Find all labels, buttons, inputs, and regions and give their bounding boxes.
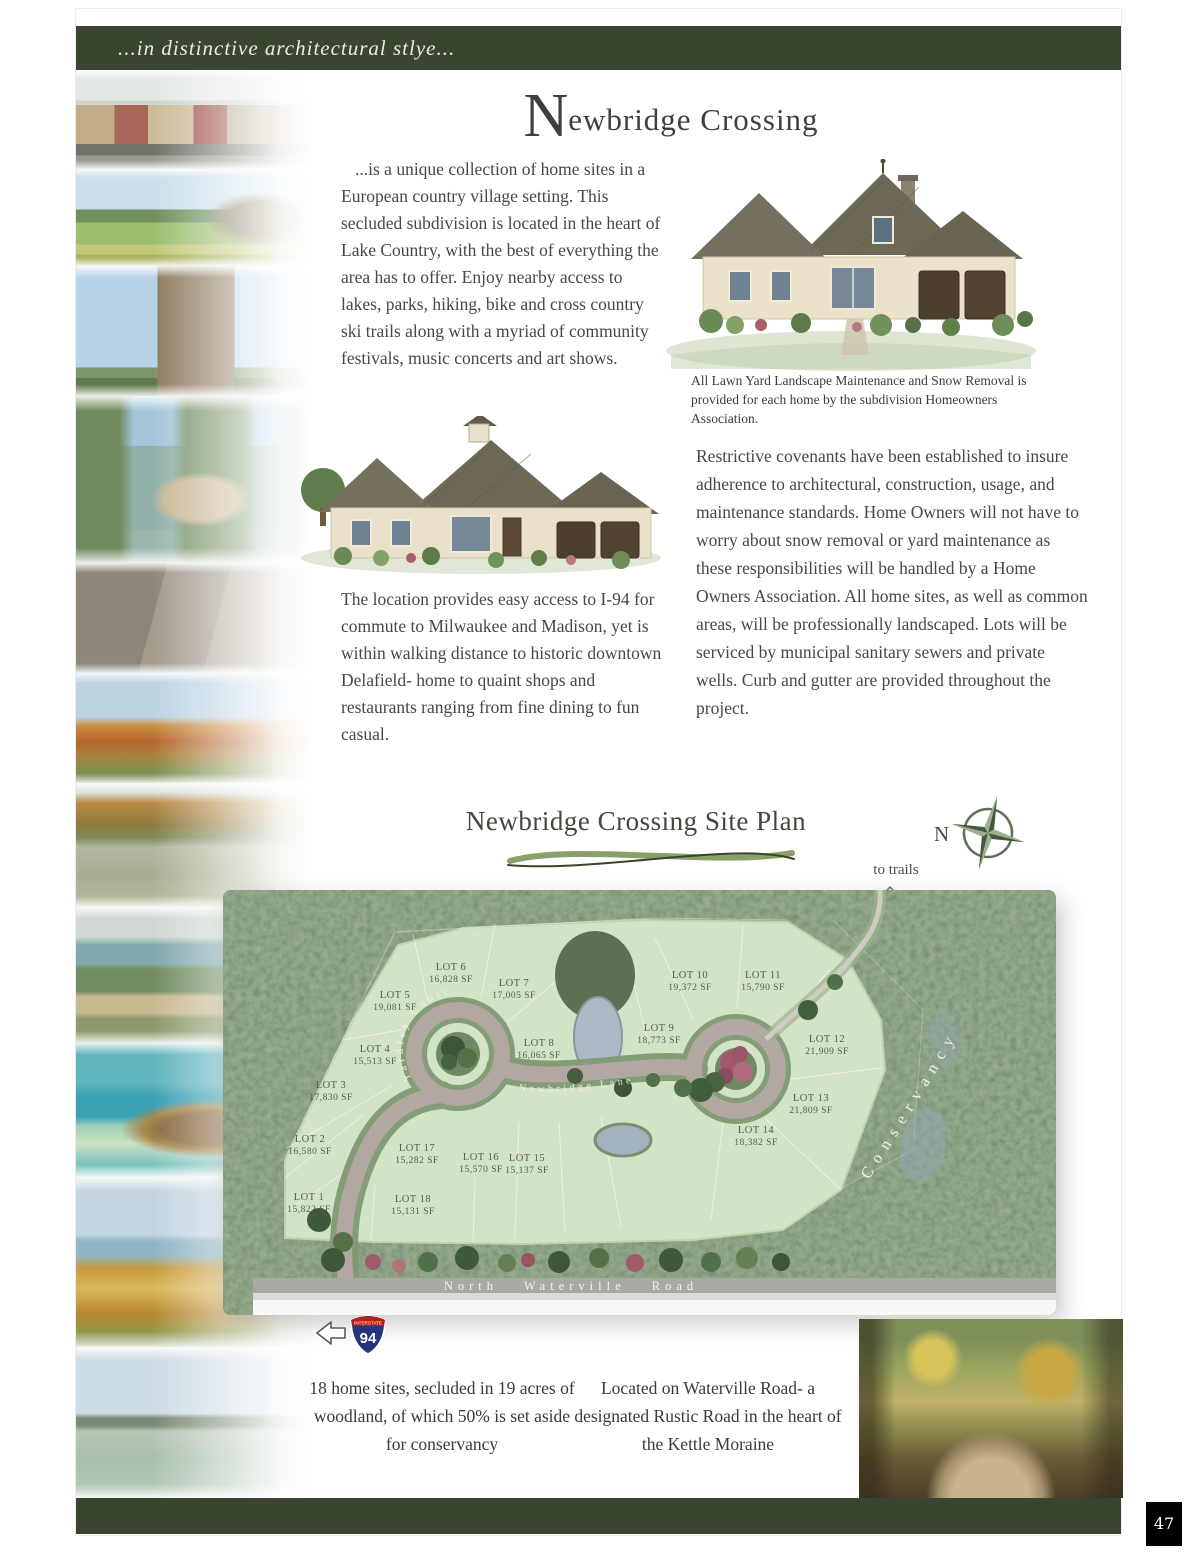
house-illustration-1 [651,159,1051,374]
location-paragraph: The location provides easy access to I-9… [341,586,663,748]
photo-calm-lake [76,1347,316,1498]
trails-label: to trails [851,862,941,879]
garage-door [919,271,959,319]
title-swoosh [506,847,796,873]
site-plan-map: Yardley Court Newbridge Lane Conservancy… [223,890,1056,1315]
page-title: Newbridge Crossing [426,87,916,145]
maintenance-caption: All Lawn Yard Landscape Maintenance and … [691,371,1063,428]
covenants-paragraph: Restrictive covenants have been establis… [696,442,1088,722]
header-bar: ...in distinctive architectural stlye... [76,26,1121,70]
garage-door [557,522,595,558]
photo-lake-reflection [76,783,316,907]
small-pond [595,1124,651,1156]
house-illustration-2 [291,416,671,578]
photo-park-sign [76,396,316,563]
brochure-page: ...in distinctive architectural stlye...… [75,8,1122,1536]
page-title-rest: ewbridge Crossing [568,102,818,137]
left-arrow-icon [317,1322,345,1344]
intro-paragraph: ...is a unique collection of home sites … [341,156,663,372]
interstate-shield: INTERSTATE 94 [351,1316,385,1354]
photo-autumn-canopy [76,673,316,783]
rustic-road-photo [859,1319,1123,1498]
photo-observation-tower [76,266,316,396]
cupola [469,424,489,442]
footer-bar [76,1498,1121,1534]
summary-rustic-road: Located on Waterville Road- a designated… [564,1374,852,1458]
photo-village-street [76,71,316,169]
front-door [503,518,521,556]
header-tagline: ...in distinctive architectural stlye... [76,26,1121,70]
siteplan-title: Newbridge Crossing Site Plan [376,806,896,837]
interstate-top-label: INTERSTATE [354,1321,382,1326]
road-label: North Waterville Road [444,1279,698,1293]
bay-window [451,516,491,552]
interstate-marker: INTERSTATE 94 [313,1312,385,1358]
photo-stone-tower-view [76,563,316,673]
page-title-initial: N [523,82,568,150]
interstate-number: 94 [360,1330,377,1347]
summary-home-sites: 18 home sites, secluded in 19 acres of w… [304,1374,580,1458]
page-number: 47 [1146,1502,1182,1546]
photo-golf-wagon [76,169,316,266]
compass-n-label: N [934,822,949,846]
garage-door [965,271,1005,319]
